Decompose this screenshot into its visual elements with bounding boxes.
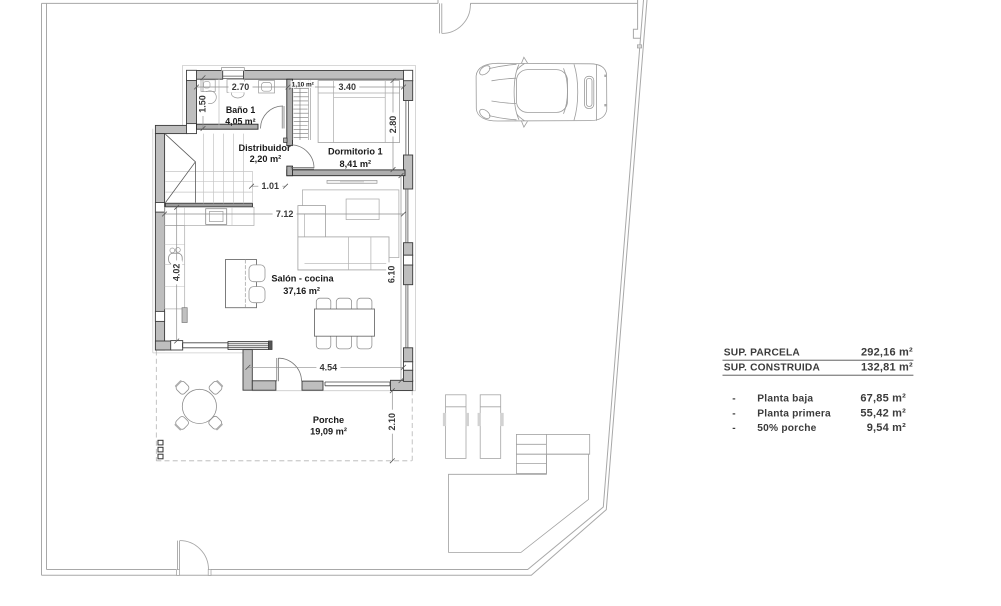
svg-text:Distribuidor: Distribuidor (238, 143, 290, 153)
svg-text:-: - (732, 408, 736, 419)
svg-text:Baño 1: Baño 1 (226, 105, 255, 115)
svg-text:Planta primera: Planta primera (757, 408, 831, 419)
svg-text:Dormitorio 1: Dormitorio 1 (328, 147, 383, 157)
svg-text:Planta baja: Planta baja (757, 394, 813, 405)
svg-text:Salón - cocina: Salón - cocina (271, 273, 334, 283)
svg-text:SUP. CONSTRUIDA: SUP. CONSTRUIDA (724, 363, 821, 374)
svg-text:Porche: Porche (313, 415, 344, 425)
svg-text:9,54 m²: 9,54 m² (867, 422, 906, 434)
svg-text:1,10 m²: 1,10 m² (292, 82, 314, 89)
svg-text:4,05 m²: 4,05 m² (225, 116, 255, 126)
svg-text:3.40: 3.40 (339, 82, 357, 92)
svg-text:6.10: 6.10 (387, 266, 397, 284)
svg-text:2.80: 2.80 (388, 116, 398, 134)
svg-text:SUP. PARCELA: SUP. PARCELA (724, 347, 801, 358)
svg-text:4.02: 4.02 (172, 264, 182, 282)
svg-text:8,41 m²: 8,41 m² (339, 159, 371, 169)
svg-text:55,42 m²: 55,42 m² (860, 407, 906, 419)
svg-text:1.50: 1.50 (198, 95, 208, 113)
svg-text:2.70: 2.70 (232, 82, 250, 92)
svg-text:2.10: 2.10 (387, 413, 397, 431)
svg-text:19,09 m²: 19,09 m² (310, 427, 347, 437)
svg-text:2,20 m²: 2,20 m² (250, 154, 282, 164)
svg-text:-: - (732, 394, 736, 405)
svg-text:37,16 m²: 37,16 m² (283, 286, 320, 296)
svg-text:-: - (732, 423, 736, 434)
svg-text:4.54: 4.54 (320, 362, 338, 372)
svg-text:132,81 m²: 132,81 m² (861, 362, 913, 374)
svg-text:7.12: 7.12 (276, 209, 294, 219)
svg-text:67,85 m²: 67,85 m² (860, 393, 906, 405)
svg-text:50% porche: 50% porche (757, 423, 816, 434)
svg-text:1.01: 1.01 (262, 181, 280, 191)
svg-text:292,16 m²: 292,16 m² (861, 346, 913, 358)
